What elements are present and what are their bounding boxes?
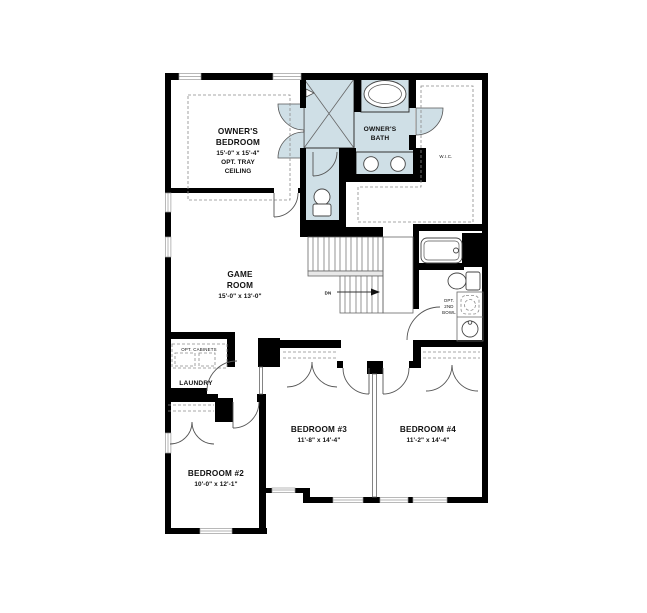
game-room-label-1: GAME	[227, 270, 253, 279]
bedroom2-dims: 10'-0" x 12'-1"	[194, 481, 237, 488]
bedroom2-label: BEDROOM #2	[188, 469, 244, 478]
window	[380, 498, 408, 503]
vanity-symbol-hall	[457, 292, 483, 341]
floor-plan: DN	[0, 0, 647, 613]
owners-bedroom-label-2: BEDROOM	[216, 138, 260, 147]
wic-door	[416, 108, 443, 135]
opt-bowl-label-3: BOWL	[442, 310, 456, 315]
window	[200, 529, 232, 534]
wic-label: W.I.C.	[439, 154, 452, 159]
bedroom4-label: BEDROOM #4	[400, 425, 456, 434]
bedroom3-dims: 11'-8" x 14'-4"	[298, 437, 341, 444]
owners-bath-label-2: BATH	[371, 135, 390, 142]
stairs-dn-label: DN	[325, 291, 332, 296]
opt-bowl-label-2: 2ND	[444, 304, 453, 309]
owners-bedroom-dims: 15'-0" x 15'-4"	[216, 150, 259, 157]
window	[165, 237, 171, 257]
owners-bedroom-note-2: CEILING	[225, 168, 252, 175]
owners-vanity-symbol	[356, 152, 417, 176]
opt-cabinets-label: OPT. CABINETS	[181, 347, 217, 352]
tub-symbol	[421, 238, 462, 263]
stairs-down-symbol: DN	[308, 237, 413, 313]
hall-thin-wall	[260, 367, 263, 394]
hall-bath-door	[407, 307, 440, 340]
bedroom3-door	[343, 368, 369, 394]
bedroom4-closet-doors	[426, 365, 478, 391]
game-room-dims: 15'-0" x 13'-0"	[218, 293, 261, 300]
owners-bedroom-door	[274, 193, 298, 217]
shower-symbol	[304, 79, 354, 148]
window	[272, 488, 295, 493]
toilet-symbol-hall	[448, 272, 480, 290]
bedroom3-closet-doors	[287, 362, 337, 387]
bedroom2-closet-doors	[170, 422, 214, 444]
opt-bowl-label-1: OPT.	[444, 298, 455, 303]
optional-second-bowl-symbol	[461, 296, 479, 315]
window	[413, 498, 447, 503]
stair-void	[383, 237, 413, 313]
bedroom4-door	[383, 368, 409, 394]
window	[273, 74, 301, 80]
bedroom3-label: BEDROOM #3	[291, 425, 347, 434]
bedroom2-door	[233, 402, 259, 428]
toilet-symbol-owners	[313, 189, 331, 216]
owners-bedroom-note-1: OPT. TRAY	[221, 159, 255, 166]
bed3-bed4-divider	[373, 374, 377, 497]
bedroom4-dims: 11'-2" x 14'-4"	[407, 437, 450, 444]
window	[333, 498, 363, 503]
owners-tub-symbol	[361, 76, 409, 112]
floor-plan-page: DN	[0, 0, 647, 613]
window	[165, 193, 171, 212]
laundry-label: LAUNDRY	[179, 380, 213, 387]
owners-bedroom-label-1: OWNER'S	[218, 127, 259, 136]
window	[179, 74, 201, 80]
opt-tray-ceiling-outline	[188, 95, 290, 200]
owners-bath-label-1: OWNER'S	[364, 126, 397, 133]
game-room-label-2: ROOM	[227, 281, 253, 290]
window	[165, 433, 171, 453]
